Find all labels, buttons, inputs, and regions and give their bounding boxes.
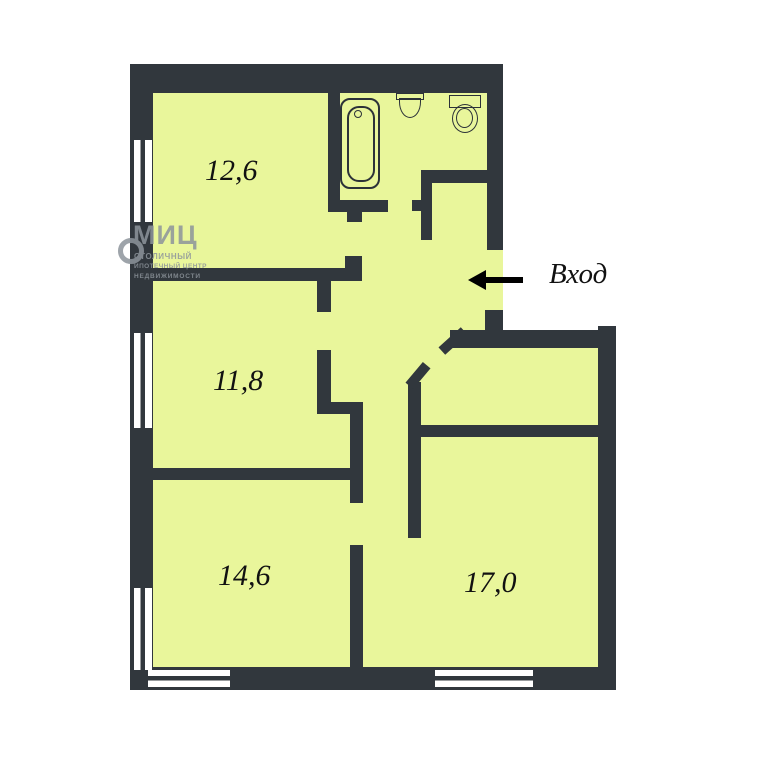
bathtub-basin [347,106,375,182]
bathtub-drain [354,110,362,118]
wall-hall-top [450,330,616,348]
wall-hall-left [421,170,432,240]
window-bottom-1 [148,670,230,687]
wall-divider-end-piece [345,256,362,269]
watermark-line-3: НЕДВИЖИМОСТИ [134,273,201,280]
wall-bathroom-left [328,93,340,212]
wall-room4-top [408,425,600,437]
window-left-3 [134,588,152,670]
wall-room2-right-a [317,281,331,312]
watermark-line-2: ИПОТЕЧНЫЙ ЦЕНТР [134,263,207,270]
room-area-label-11-8: 11,8 [213,364,263,398]
wall-bathroom-door-jamb [347,212,362,222]
watermark-line-1: СТОЛИЧНЫЙ [134,252,192,261]
wall-divider-room2-room3 [130,468,353,480]
entrance-arrow-icon [468,270,486,290]
floor-plan: 12,6 11,8 14,6 17,0 Вход МИЦ СТОЛИЧНЫЙ И… [0,0,768,768]
wall-jog-vertical [350,402,363,470]
window-left-1 [134,140,152,222]
floor-area-right [487,348,598,667]
window-bottom-2 [435,670,533,687]
room-area-label-14-6: 14,6 [218,559,271,593]
wall-room3-room4 [350,545,363,667]
sink-icon [396,93,424,119]
wall-below-divider [350,468,363,503]
bathtub-icon [340,98,380,189]
toilet-icon [449,95,481,137]
wall-corridor-room4 [408,382,421,538]
watermark-logo-text: МИЦ [133,220,198,251]
entrance-label: Вход [549,258,607,291]
room-area-label-12-6: 12,6 [205,154,258,188]
wall-outer-top [130,64,503,93]
room-area-label-17-0: 17,0 [464,566,517,600]
wall-outer-right-lower [598,326,616,690]
wall-bathroom-bottom [328,200,388,212]
window-left-2 [134,333,152,428]
entrance-arrow-shaft [486,277,523,283]
wall-outer-right-upper [487,64,503,250]
